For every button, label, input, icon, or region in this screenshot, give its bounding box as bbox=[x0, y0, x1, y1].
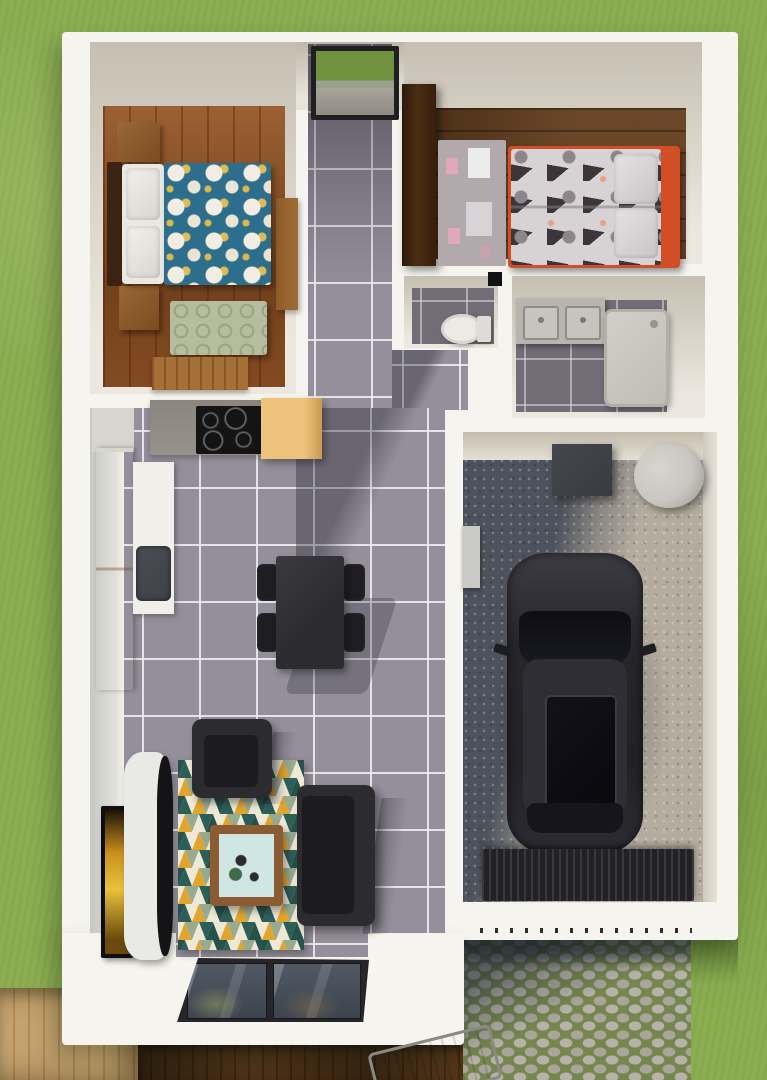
storage-box bbox=[552, 444, 612, 496]
kids-wardrobe bbox=[402, 84, 436, 266]
kitchen-corner-face bbox=[92, 408, 134, 452]
tv-console-edge bbox=[157, 756, 173, 956]
kids-pillows bbox=[612, 152, 662, 262]
sofa bbox=[297, 785, 375, 926]
kids-play-rug bbox=[438, 140, 506, 266]
armchair bbox=[192, 719, 272, 798]
bed-headboard bbox=[107, 162, 122, 286]
induction-cooktop bbox=[196, 406, 262, 454]
pillow bbox=[126, 226, 160, 278]
sofa-seat bbox=[302, 796, 354, 914]
master-side-cabinet bbox=[276, 198, 298, 310]
pillow bbox=[614, 208, 658, 258]
nightstand-bottom bbox=[119, 286, 159, 330]
south-wall-right bbox=[368, 933, 464, 959]
bed-pillows bbox=[122, 164, 164, 284]
floorplan-scene bbox=[0, 0, 767, 1080]
floor-reflection bbox=[274, 964, 360, 1018]
pillow bbox=[614, 154, 658, 204]
front-door bbox=[311, 46, 399, 120]
glass-panel bbox=[187, 963, 267, 1019]
car bbox=[507, 553, 643, 855]
sink-basin bbox=[523, 306, 559, 340]
coffee-table bbox=[210, 825, 283, 906]
garage-side-door bbox=[462, 526, 480, 588]
nightstand-top bbox=[117, 122, 160, 162]
kitchen-sink bbox=[136, 546, 171, 601]
corridor-shadow bbox=[392, 350, 468, 410]
kitchen-tall-cabinet bbox=[261, 398, 322, 459]
bedroom-dresser bbox=[152, 357, 248, 390]
garage-door bbox=[482, 849, 694, 901]
master-duvet-teal-floral bbox=[164, 163, 271, 285]
armchair-seat bbox=[204, 735, 258, 787]
dining-table bbox=[276, 556, 344, 669]
garage-threshold-ticks bbox=[480, 928, 692, 933]
garage-east-face bbox=[703, 432, 717, 902]
wall-vent bbox=[488, 272, 502, 286]
shower-tray bbox=[604, 309, 669, 407]
water-tank bbox=[634, 444, 704, 508]
corridor-floor bbox=[392, 350, 468, 410]
sink-basin bbox=[565, 306, 601, 340]
double-sink-vanity bbox=[516, 298, 605, 344]
pillow bbox=[126, 168, 160, 220]
car-rear-window bbox=[527, 803, 623, 833]
toilet-tank bbox=[477, 316, 491, 342]
bedroom-bench bbox=[170, 301, 267, 355]
rug-reflection bbox=[188, 964, 266, 1018]
dining-chair bbox=[343, 564, 365, 601]
glass-panel bbox=[273, 963, 361, 1019]
kitchen-cabinet-run bbox=[96, 448, 133, 690]
dining-chair bbox=[343, 613, 365, 652]
sliding-glass-door bbox=[177, 958, 369, 1022]
grass-shadow bbox=[691, 933, 738, 985]
